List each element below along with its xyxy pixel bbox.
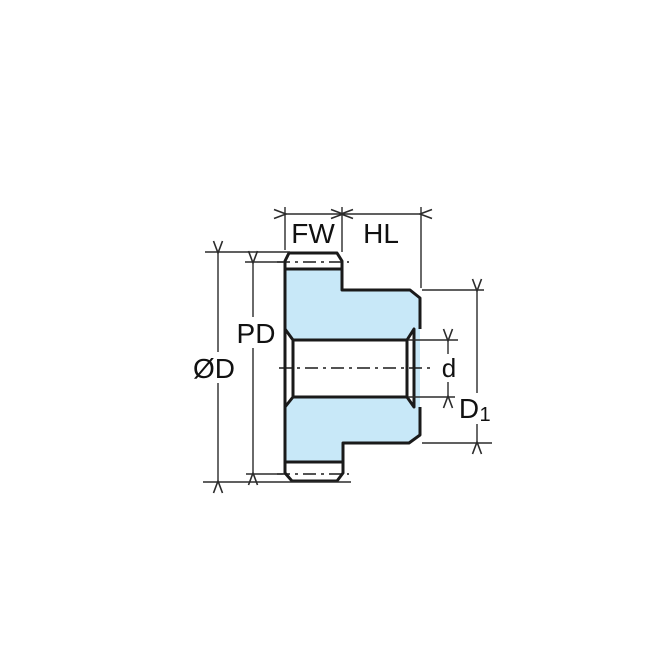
label-outside-diameter: ØD [193, 353, 235, 384]
label-face-width: FW [291, 218, 335, 249]
label-hub-diameter: D [459, 393, 479, 424]
label-pitch-diameter: PD [237, 318, 276, 349]
label-hub-length: HL [363, 218, 399, 249]
gear-bottom-tooth [285, 462, 343, 481]
gear-top-tooth [285, 253, 342, 269]
label-bore-diameter: d [442, 353, 456, 383]
gear-dimension-diagram: FW HL ØD PD d D 1 [0, 0, 670, 670]
diagram-canvas: FW HL ØD PD d D 1 [0, 0, 670, 670]
label-hub-diameter-subscript: 1 [479, 404, 490, 426]
